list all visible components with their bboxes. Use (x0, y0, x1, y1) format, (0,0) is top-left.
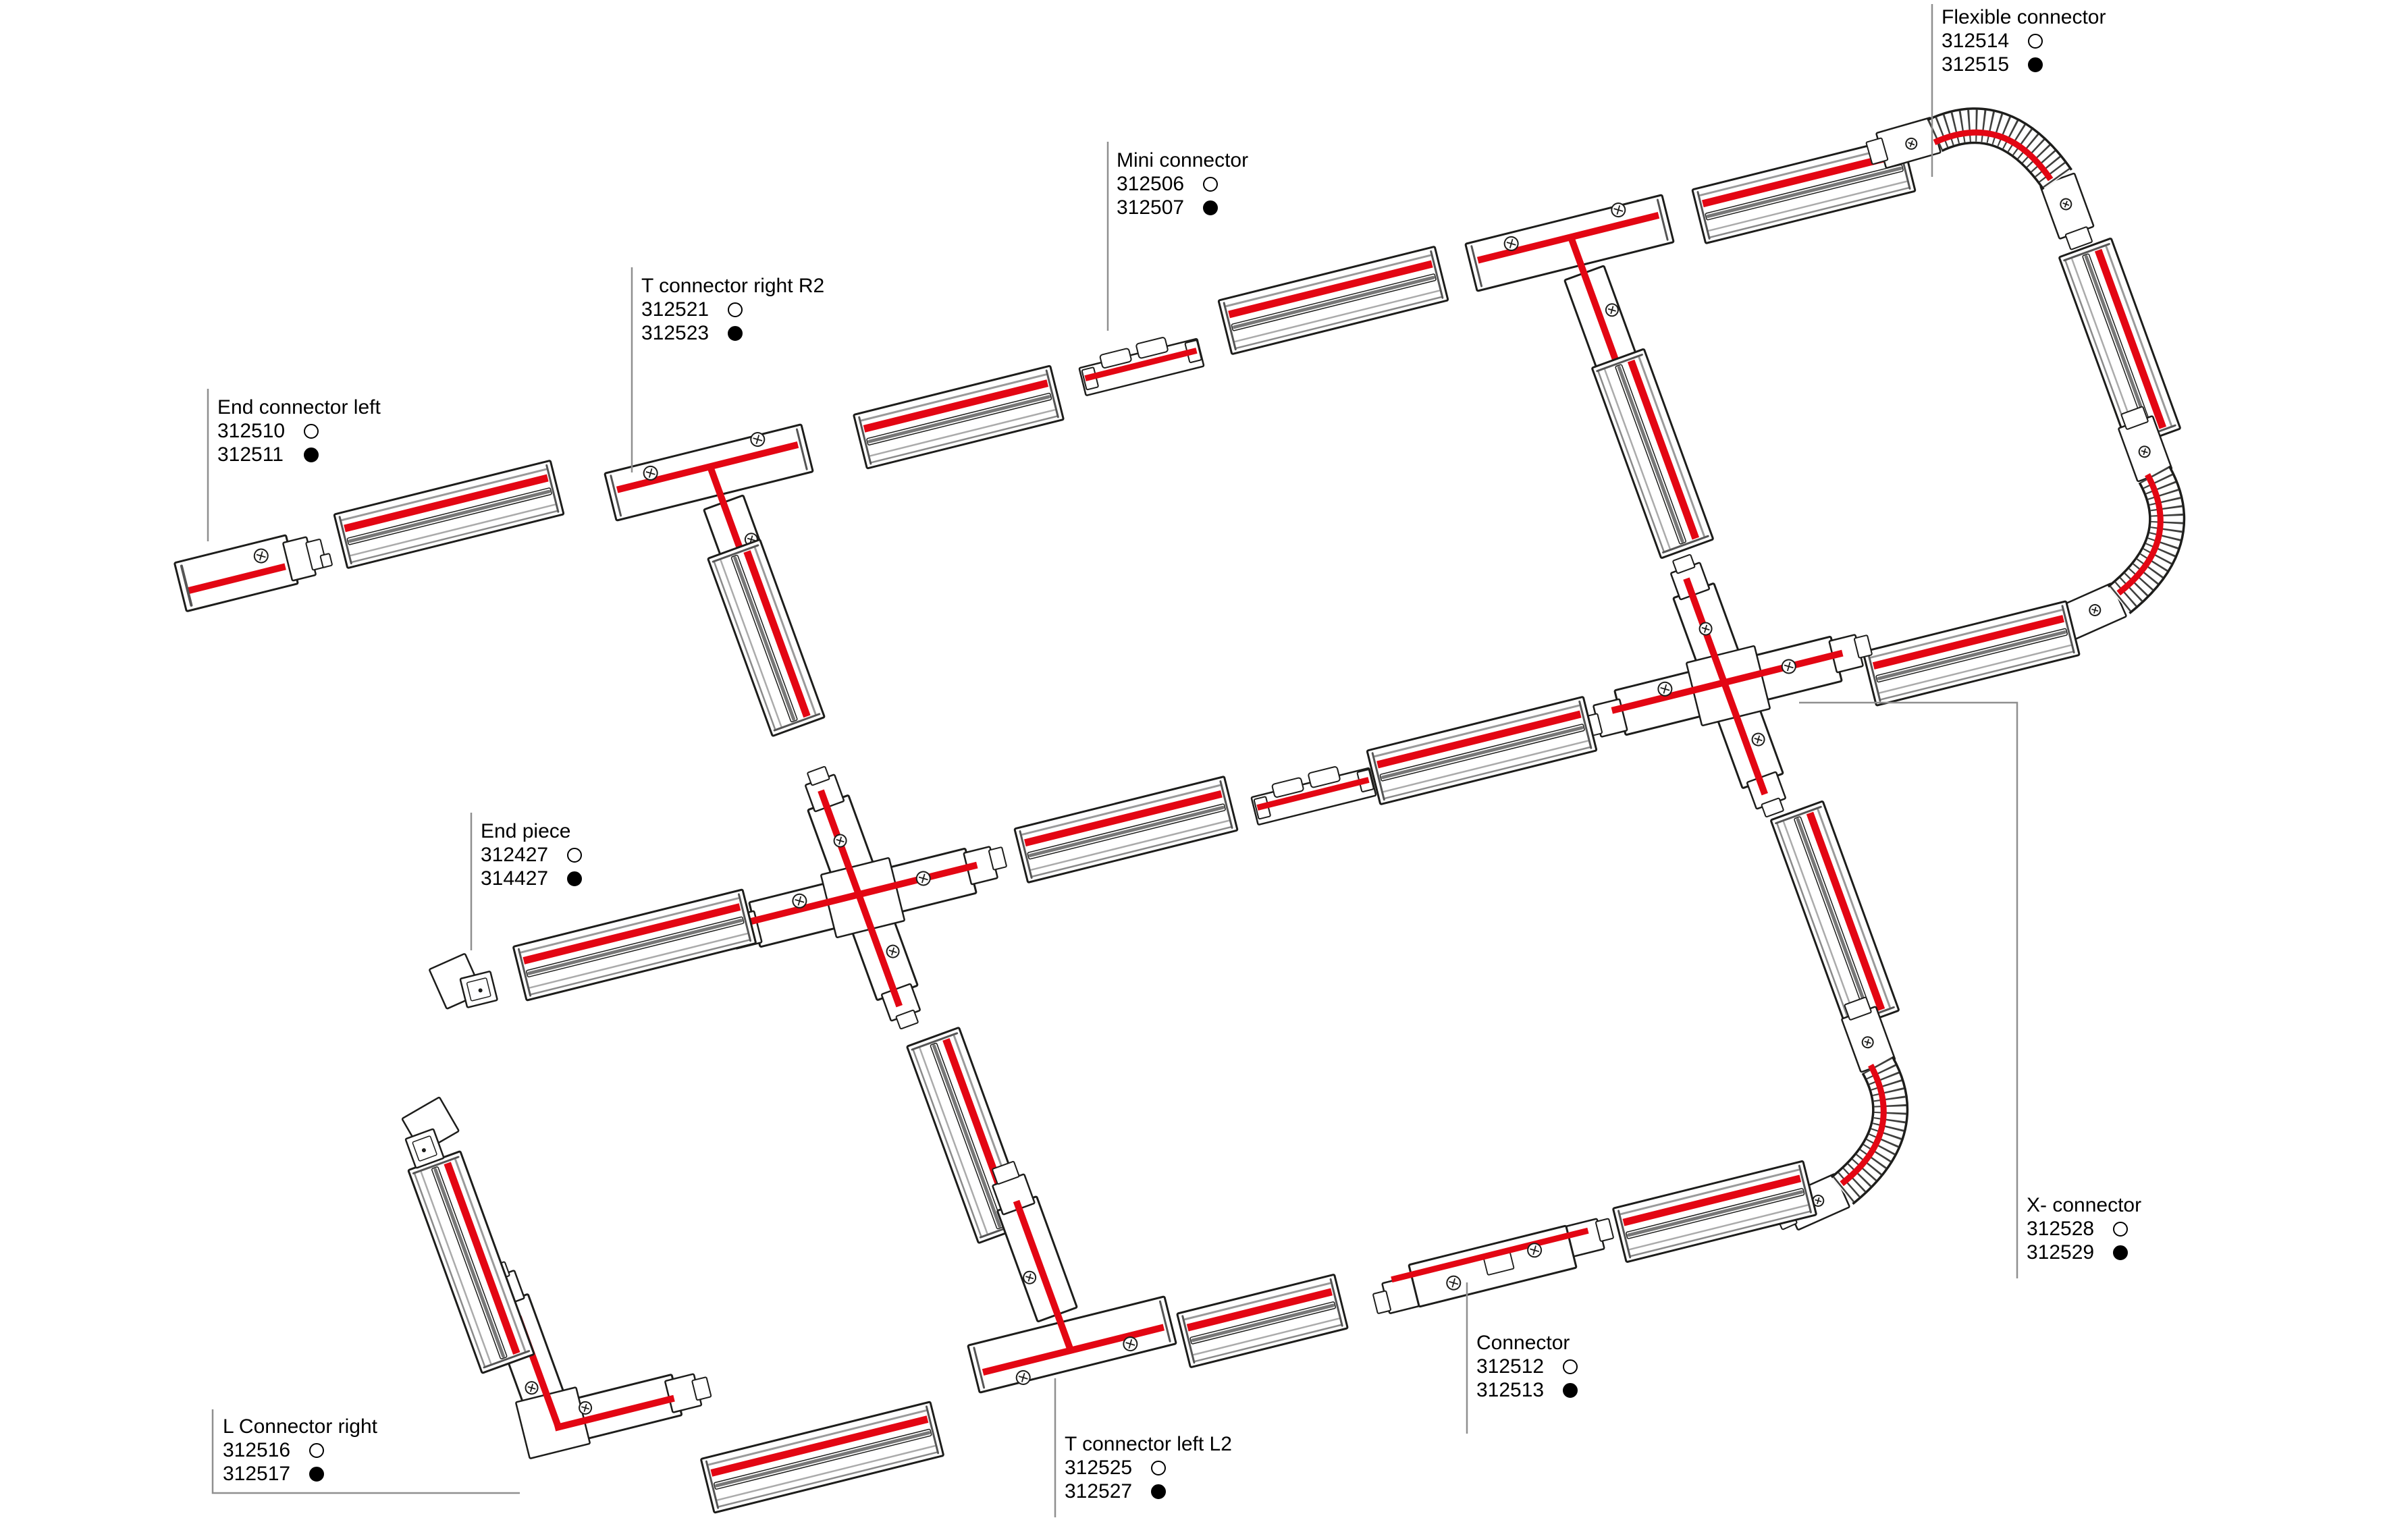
outline-variant-dot-icon (1563, 1359, 1578, 1374)
outline-variant-dot-icon (2113, 1222, 2128, 1237)
label-code-row: 312516 (223, 1438, 377, 1462)
label-code-row: 312523 (641, 321, 824, 345)
product-code: 312521 (641, 298, 714, 321)
product-code: 312510 (217, 419, 290, 443)
product-code: 314427 (481, 867, 554, 890)
label-code-row: 312513 (1476, 1378, 1578, 1402)
outline-variant-dot-icon (1151, 1461, 1166, 1475)
product-code: 312515 (1942, 53, 2014, 76)
outline-variant-dot-icon (304, 424, 319, 439)
product-code: 312506 (1117, 172, 1189, 196)
outline-variant-dot-icon (2028, 34, 2043, 49)
label-code-row: 312517 (223, 1462, 377, 1486)
filled-variant-dot-icon (1151, 1484, 1166, 1499)
label-title: End piece (481, 819, 582, 843)
labels-layer: End connector left312510312511T connecto… (0, 0, 2408, 1518)
filled-variant-dot-icon (728, 326, 743, 341)
product-code: 312513 (1476, 1378, 1549, 1402)
label-code-row: 312521 (641, 298, 824, 321)
label-title: End connector left (217, 396, 381, 419)
label-connector: Connector312512312513 (1476, 1331, 1578, 1402)
label-t-connector-left-l2: T connector left L2312525312527 (1065, 1432, 1232, 1503)
product-code: 312527 (1065, 1480, 1138, 1503)
product-code: 312525 (1065, 1456, 1138, 1480)
diagram-canvas: End connector left312510312511T connecto… (0, 0, 2408, 1518)
filled-variant-dot-icon (2028, 57, 2043, 72)
product-code: 312512 (1476, 1355, 1549, 1378)
product-code: 312427 (481, 843, 554, 867)
label-title: T connector right R2 (641, 274, 824, 298)
label-end-piece: End piece312427314427 (481, 819, 582, 890)
outline-variant-dot-icon (309, 1443, 324, 1458)
label-code-row: 312512 (1476, 1355, 1578, 1378)
filled-variant-dot-icon (1203, 200, 1218, 215)
label-x-connector: X- connector312528312529 (2027, 1193, 2141, 1264)
outline-variant-dot-icon (1203, 177, 1218, 192)
label-code-row: 312529 (2027, 1241, 2141, 1264)
label-code-row: 312528 (2027, 1217, 2141, 1241)
label-code-row: 312527 (1065, 1480, 1232, 1503)
outline-variant-dot-icon (567, 848, 582, 863)
label-code-row: 312514 (1942, 29, 2106, 53)
product-code: 312511 (217, 443, 290, 466)
label-l-connector-right: L Connector right312516312517 (223, 1415, 377, 1486)
label-code-row: 312506 (1117, 172, 1248, 196)
label-end-connector-left: End connector left312510312511 (217, 396, 381, 466)
filled-variant-dot-icon (2113, 1245, 2128, 1260)
filled-variant-dot-icon (309, 1467, 324, 1482)
label-code-row: 312427 (481, 843, 582, 867)
label-code-row: 312507 (1117, 196, 1248, 219)
filled-variant-dot-icon (1563, 1383, 1578, 1398)
label-code-row: 314427 (481, 867, 582, 890)
label-title: Connector (1476, 1331, 1578, 1355)
product-code: 312529 (2027, 1241, 2099, 1264)
label-code-row: 312510 (217, 419, 381, 443)
label-title: Mini connector (1117, 148, 1248, 172)
filled-variant-dot-icon (304, 448, 319, 462)
label-title: T connector left L2 (1065, 1432, 1232, 1456)
label-title: Flexible connector (1942, 5, 2106, 29)
label-t-connector-right-r2: T connector right R2312521312523 (641, 274, 824, 345)
filled-variant-dot-icon (567, 871, 582, 886)
label-flexible-connector: Flexible connector312514312515 (1942, 5, 2106, 76)
product-code: 312514 (1942, 29, 2014, 53)
label-title: L Connector right (223, 1415, 377, 1438)
label-code-row: 312515 (1942, 53, 2106, 76)
product-code: 312507 (1117, 196, 1189, 219)
product-code: 312528 (2027, 1217, 2099, 1241)
outline-variant-dot-icon (728, 302, 743, 317)
label-code-row: 312525 (1065, 1456, 1232, 1480)
product-code: 312517 (223, 1462, 296, 1486)
label-mini-connector: Mini connector312506312507 (1117, 148, 1248, 219)
label-code-row: 312511 (217, 443, 381, 466)
product-code: 312516 (223, 1438, 296, 1462)
label-title: X- connector (2027, 1193, 2141, 1217)
product-code: 312523 (641, 321, 714, 345)
